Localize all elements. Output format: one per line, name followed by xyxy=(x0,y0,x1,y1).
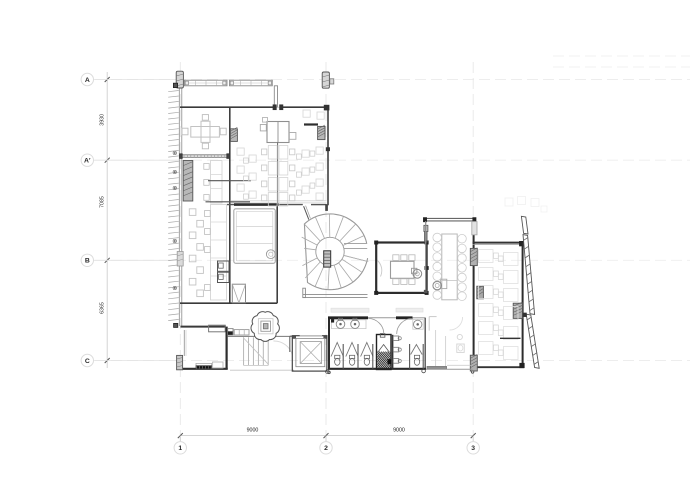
svg-text:A: A xyxy=(85,77,90,84)
svg-text:A′: A′ xyxy=(84,158,91,165)
svg-text:B: B xyxy=(85,258,90,265)
svg-text:3: 3 xyxy=(471,445,475,452)
svg-text:C: C xyxy=(85,358,90,365)
svg-text:9000: 9000 xyxy=(247,427,259,433)
svg-text:1: 1 xyxy=(178,445,182,452)
svg-text:3930: 3930 xyxy=(100,114,106,126)
svg-text:2: 2 xyxy=(324,445,328,452)
svg-text:9000: 9000 xyxy=(393,427,405,433)
svg-text:6365: 6365 xyxy=(100,302,106,314)
svg-text:7085: 7085 xyxy=(100,196,106,208)
